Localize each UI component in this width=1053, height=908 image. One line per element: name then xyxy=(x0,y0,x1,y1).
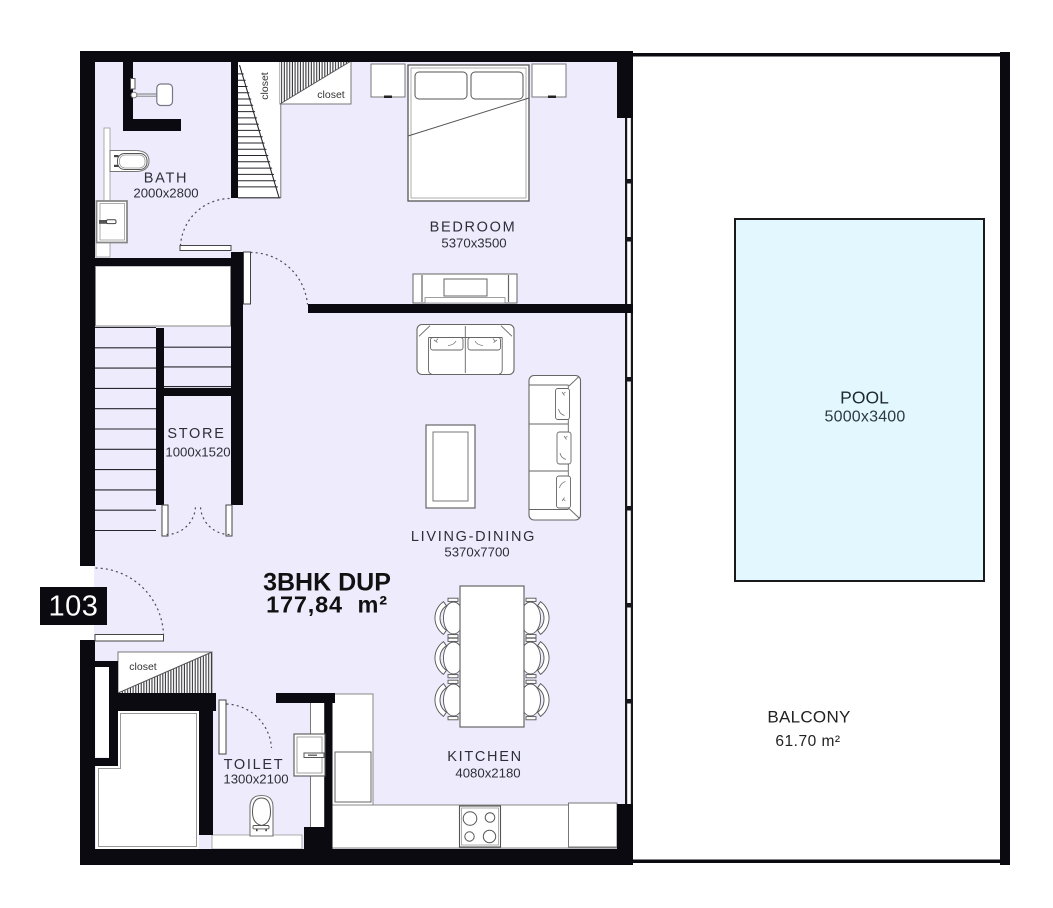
svg-text:1300x2100: 1300x2100 xyxy=(223,772,288,787)
svg-text:5370x3500: 5370x3500 xyxy=(441,236,506,251)
svg-text:177,84 m²: 177,84 m² xyxy=(266,592,388,618)
svg-text:5370x7700: 5370x7700 xyxy=(444,545,509,560)
svg-text:61.70 m²: 61.70 m² xyxy=(775,733,840,750)
svg-text:closet: closet xyxy=(259,72,271,100)
svg-text:KITCHEN: KITCHEN xyxy=(447,749,523,765)
svg-text:POOL: POOL xyxy=(840,388,889,408)
svg-text:BALCONY: BALCONY xyxy=(767,708,850,727)
svg-text:2000x2800: 2000x2800 xyxy=(133,186,198,201)
svg-text:closet: closet xyxy=(129,661,157,673)
svg-text:BATH: BATH xyxy=(144,171,188,187)
svg-text:4080x2180: 4080x2180 xyxy=(455,766,520,781)
svg-text:closet: closet xyxy=(317,89,345,101)
svg-text:5000x3400: 5000x3400 xyxy=(825,409,906,426)
svg-text:STORE: STORE xyxy=(167,426,225,442)
svg-text:LIVING-DINING: LIVING-DINING xyxy=(411,529,536,545)
svg-text:1000x1520: 1000x1520 xyxy=(165,445,230,460)
svg-text:BEDROOM: BEDROOM xyxy=(430,220,517,236)
svg-text:103: 103 xyxy=(49,591,99,623)
